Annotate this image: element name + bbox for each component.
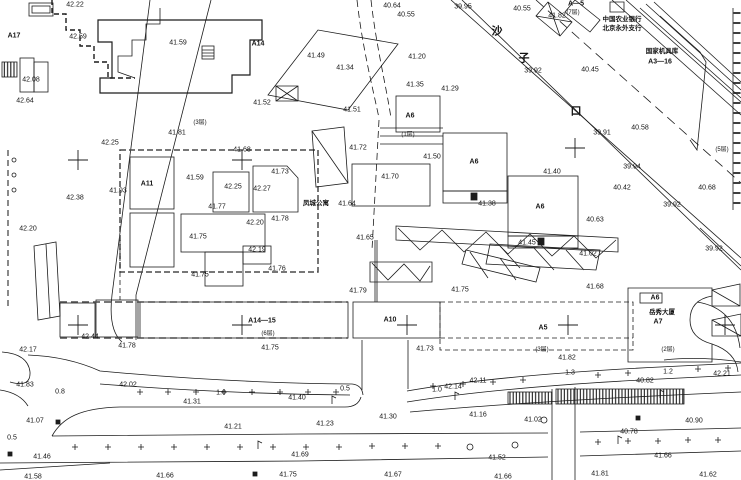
tree-and-point-symbols — [8, 365, 731, 476]
bottom-road-west — [0, 352, 363, 436]
bottom-road-2 — [0, 428, 741, 470]
south-vertical-road — [362, 340, 575, 480]
building-a6-cluster — [380, 96, 578, 248]
fengcheng-compound — [8, 150, 377, 310]
footbridge-hatch — [508, 389, 684, 404]
survey-map-canvas: 42.2242.5941.5942.0842.6440.6440.5539.95… — [0, 0, 741, 480]
shazikou-road — [451, 0, 741, 362]
bank-buildings — [536, 0, 624, 36]
left-diagonal-road — [111, 0, 211, 342]
building-a14 — [98, 20, 398, 110]
map-linework — [0, 0, 741, 480]
slope-hatch-bands — [370, 226, 618, 282]
building-a17-block — [2, 0, 160, 92]
bottom-road-east — [407, 363, 741, 412]
